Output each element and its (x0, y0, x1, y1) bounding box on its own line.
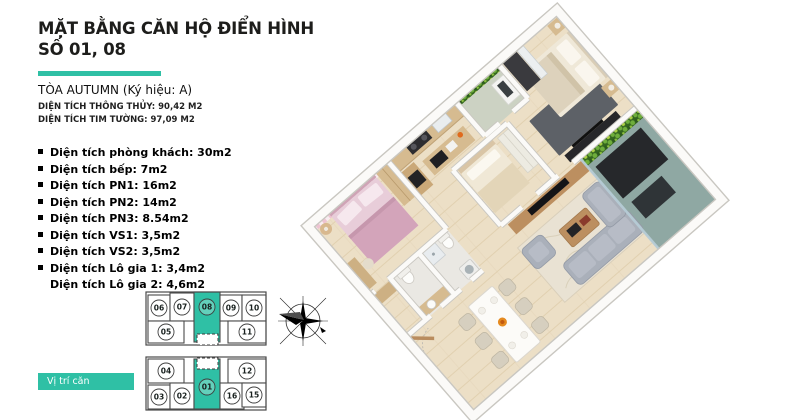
svg-text:01: 01 (202, 383, 212, 392)
room-area-item: Diện tích phòng khách: 30m2 (38, 147, 232, 159)
unit-cell-07: 07 (170, 293, 194, 321)
unit-cell-09: 09 (220, 295, 242, 321)
page: MẶT BẰNG CĂN HỘ ĐIỂN HÌNH SỐ 01, 08 TÒA … (0, 0, 800, 420)
svg-text:10: 10 (249, 304, 259, 313)
room-area-item: Diện tích VS1: 3,5m2 (38, 230, 232, 242)
page-title-line1: MẶT BẰNG CĂN HỘ ĐIỂN HÌNH (38, 18, 314, 39)
room-area-list: Diện tích phòng khách: 30m2Diện tích bếp… (38, 147, 232, 291)
svg-text:03: 03 (154, 393, 164, 402)
svg-text:06: 06 (154, 304, 164, 313)
area-net: DIỆN TÍCH THÔNG THỦY: 90,42 M2 (38, 101, 202, 114)
area-summary: DIỆN TÍCH THÔNG THỦY: 90,42 M2 DIỆN TÍCH… (38, 101, 202, 127)
floor-plan-3d (288, 0, 800, 420)
svg-text:08: 08 (202, 303, 212, 312)
svg-text:04: 04 (161, 367, 171, 376)
unit-cell-05: 05 (148, 321, 184, 343)
unit-cell-03: 03 (148, 385, 170, 409)
unit-cell-04: 04 (148, 359, 184, 383)
svg-text:07: 07 (177, 303, 187, 312)
svg-text:15: 15 (249, 391, 259, 400)
compass-rose-icon (276, 294, 330, 348)
page-title: MẶT BẰNG CĂN HỘ ĐIỂN HÌNH SỐ 01, 08 (38, 18, 314, 60)
room-area-item: Diện tích bếp: 7m2 (38, 164, 232, 176)
unit-cell-02: 02 (170, 383, 194, 409)
room-area-item: Diện tích Lô gia 1: 3,4m2 (38, 263, 232, 275)
page-title-line2: SỐ 01, 08 (38, 39, 314, 60)
unit-location-map: 0607080910051104120302011615 (144, 289, 268, 413)
unit-cell-15: 15 (242, 383, 266, 407)
svg-text:16: 16 (227, 392, 237, 401)
area-gross: DIỆN TÍCH TIM TƯỜNG: 97,09 M2 (38, 114, 202, 127)
unit-cell-10: 10 (242, 295, 266, 321)
room-area-block: Diện tích phòng khách: 30m2Diện tích bếp… (38, 147, 232, 296)
title-underline (38, 71, 161, 76)
room-area-item: Diện tích PN2: 14m2 (38, 197, 232, 209)
unit-cell-11: 11 (228, 321, 266, 343)
map-corridor-upper (197, 334, 218, 345)
tower-name: TÒA AUTUMN (Ký hiệu: A) (38, 83, 192, 97)
svg-text:09: 09 (226, 304, 236, 313)
room-area-item: Diện tích PN3: 8.54m2 (38, 213, 232, 225)
unit-cell-06: 06 (148, 295, 170, 321)
room-area-item: Diện tích VS2: 3,5m2 (38, 246, 232, 258)
unit-location-legend: Vị trí căn (38, 373, 134, 390)
svg-text:02: 02 (177, 392, 187, 401)
svg-text:12: 12 (242, 367, 252, 376)
room-area-item: Diện tích PN1: 16m2 (38, 180, 232, 192)
unit-cell-12: 12 (228, 359, 266, 383)
svg-text:05: 05 (161, 328, 171, 337)
unit-cell-16: 16 (220, 383, 244, 409)
map-corridor-lower (197, 358, 218, 369)
svg-text:11: 11 (242, 328, 252, 337)
